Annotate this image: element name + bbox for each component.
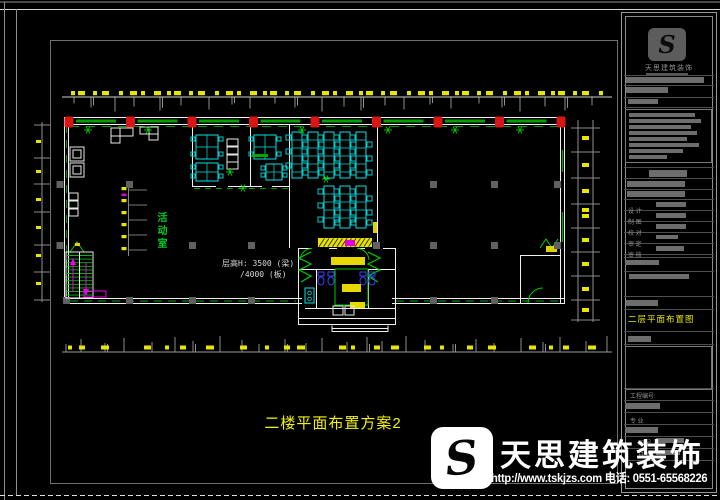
redacted-text-bar (627, 191, 685, 197)
cabinet (73, 166, 81, 174)
dim-label (582, 136, 589, 140)
cabinet (227, 155, 238, 162)
toilet-fixture (318, 272, 324, 276)
redacted-text-bar (625, 260, 659, 265)
field-check: 校 对 (628, 222, 712, 232)
field-separator (624, 400, 714, 401)
column-red (311, 117, 320, 128)
dim-label (467, 346, 473, 350)
dim-label (36, 282, 41, 285)
chair (367, 196, 372, 201)
chair (318, 217, 323, 222)
column-red (495, 117, 504, 128)
redacted-text-bar (627, 181, 685, 187)
column-gray (57, 242, 64, 249)
dim-label (549, 346, 553, 350)
sink (308, 297, 312, 301)
field-separator (624, 85, 714, 86)
dim-label (442, 91, 449, 95)
chair (283, 173, 287, 177)
toilet-fixture (328, 277, 334, 285)
desk (356, 186, 366, 228)
window-sill (138, 120, 178, 123)
desk (324, 132, 334, 178)
elevator-cab (342, 284, 361, 292)
field-separator (624, 97, 714, 98)
dim-label (174, 91, 181, 95)
chair (367, 210, 372, 215)
dim-label (374, 346, 380, 350)
chair (277, 152, 281, 156)
sink (308, 291, 312, 295)
dim-label (240, 346, 247, 350)
desk (308, 132, 318, 178)
chair (350, 163, 355, 168)
column-gray (189, 297, 196, 304)
chair (302, 135, 307, 140)
floor-height-line2: /4000 (板) (222, 269, 294, 280)
desk (292, 132, 302, 178)
chair (367, 170, 372, 175)
dim-label (122, 223, 127, 226)
column-gray (554, 242, 561, 249)
chair (318, 135, 323, 140)
column-red (188, 117, 197, 128)
watermark-logo-icon: S (431, 427, 493, 489)
column-red (372, 117, 381, 128)
dim-label (119, 91, 123, 95)
field-design: 设 计 (628, 200, 712, 210)
dim-label (122, 199, 127, 202)
dim-label (582, 214, 589, 218)
dim-label (582, 208, 589, 212)
column-gray (491, 297, 498, 304)
field-separator (624, 331, 714, 332)
chair (351, 156, 356, 161)
dim-label (351, 346, 355, 350)
redacted-text-bar (629, 274, 689, 279)
chair (367, 156, 372, 161)
chair (219, 152, 223, 156)
dim-label-magenta (122, 194, 127, 197)
dim-label (36, 140, 41, 143)
dim-label (418, 91, 425, 95)
chair (319, 170, 324, 175)
column-red (434, 117, 443, 128)
dim-label (263, 91, 267, 95)
chair (334, 135, 339, 140)
dim-label (102, 91, 109, 95)
dim-label (198, 91, 205, 95)
dim-label (206, 346, 214, 350)
dim-label (339, 346, 346, 350)
chair (318, 189, 323, 194)
field-separator (624, 412, 714, 413)
title-block: S 天思建筑装饰 设 计 制 图 校 对 审 定 审 核 二层平面布置图 工程编… (621, 12, 717, 493)
chair (219, 174, 223, 178)
watermark-logo-letter: S (443, 429, 482, 486)
desk (356, 132, 366, 178)
chair (286, 149, 291, 154)
dim-label (154, 91, 161, 95)
cabinet (70, 147, 84, 161)
column-gray (248, 297, 255, 304)
dim-label (551, 91, 555, 95)
dim-label (525, 91, 529, 95)
dim-label (503, 91, 507, 95)
central-core (299, 238, 380, 315)
company-name: 天思建筑装饰 (622, 63, 716, 73)
dim-label (514, 91, 521, 95)
dim-label (359, 91, 363, 95)
dim-label (582, 189, 589, 193)
desk (340, 132, 350, 178)
logo-letter: S (658, 30, 675, 59)
chair (350, 189, 355, 194)
column-gray (57, 181, 64, 188)
field-separator (624, 271, 714, 272)
dim-label (226, 91, 233, 95)
cabinet (227, 147, 238, 154)
dim-label (79, 346, 85, 350)
dim-label (36, 226, 41, 229)
redacted-text-bar (628, 336, 651, 342)
chair (219, 165, 223, 169)
green-counter (252, 154, 268, 157)
field-separator (624, 344, 714, 345)
dim-label (391, 346, 399, 350)
chair (302, 163, 307, 168)
dim-label (582, 163, 589, 167)
window-sill (261, 120, 301, 123)
dim-label (78, 91, 85, 95)
chair (335, 170, 340, 175)
toilet-fixture (328, 272, 334, 276)
cabinet (70, 163, 84, 177)
dim-label (215, 91, 219, 95)
chair (351, 210, 356, 215)
dim-label (486, 91, 493, 95)
dim-label (122, 211, 127, 214)
chair (351, 196, 356, 201)
cabinet (227, 139, 238, 146)
dim-label (122, 235, 127, 238)
dim-label (558, 91, 565, 95)
column-gray (189, 242, 196, 249)
window-sill (199, 120, 239, 123)
dim-label (36, 170, 41, 173)
dim-label (297, 346, 305, 350)
desk (324, 186, 334, 228)
dim-label (294, 91, 301, 95)
dim-label (333, 91, 337, 95)
dim-label (180, 346, 186, 350)
dim-label (582, 308, 589, 312)
wall-mark (75, 243, 80, 246)
chair (219, 137, 223, 141)
field-separator (624, 167, 714, 168)
chair (367, 142, 372, 147)
column-red (65, 117, 74, 128)
field-separator (624, 296, 714, 297)
toilet-fixture (318, 277, 324, 285)
floor-height-note: 层高H: 3500 (梁) /4000 (板) (222, 258, 294, 280)
redacted-text-bar (626, 300, 658, 306)
notes-box (625, 109, 712, 163)
redacted-text-bar (649, 170, 687, 177)
dim-label (529, 346, 536, 350)
dim-label (582, 91, 589, 95)
chair (318, 163, 323, 168)
chair (303, 142, 308, 147)
window-sill (445, 120, 485, 123)
wall-mark (373, 222, 377, 233)
dim-label (144, 346, 151, 350)
chair (303, 156, 308, 161)
dim-label (462, 91, 469, 95)
dim-label (477, 91, 481, 95)
room-label: 活动室 (152, 212, 168, 268)
dim-label (141, 91, 145, 95)
field-separator (624, 75, 714, 76)
dim-label (71, 91, 75, 95)
field-separator (624, 178, 714, 179)
field-separator (624, 309, 714, 310)
cabinet (111, 128, 133, 136)
dim-label (407, 91, 411, 95)
dim-label (440, 346, 444, 350)
cad-sheet: 活动室 层高H: 3500 (梁) /4000 (板) 二楼平面布置方案2 S … (0, 0, 720, 500)
dim-label (237, 91, 241, 95)
company-logo-icon: S (648, 28, 686, 61)
dim-label (284, 346, 290, 350)
dim-label (36, 198, 41, 201)
column-gray (554, 181, 561, 188)
window-sill (322, 120, 362, 123)
dim-label (122, 187, 127, 190)
window-sill (507, 120, 547, 123)
field-specialty: 专 业 (630, 416, 644, 425)
chair (286, 135, 291, 140)
field-review: 审 核 (628, 244, 712, 254)
chair (319, 156, 324, 161)
field-review-label: 审 核 (628, 253, 642, 259)
core-box (333, 306, 343, 315)
chair (334, 189, 339, 194)
dim-label (455, 91, 459, 95)
chair (350, 135, 355, 140)
dim-label (250, 91, 257, 95)
dim-label (588, 346, 596, 350)
chair (351, 170, 356, 175)
dim-label (390, 91, 397, 95)
redacted-text-bar (626, 77, 704, 83)
column-gray (126, 297, 133, 304)
chair (318, 203, 323, 208)
cabinet (69, 193, 78, 200)
desk (340, 186, 350, 228)
dim-label (122, 247, 127, 250)
dim-label (563, 346, 569, 350)
dim-label (68, 346, 72, 350)
toilet-fixture (360, 272, 366, 276)
dim-label (322, 91, 329, 95)
redacted-text-bar (628, 99, 658, 104)
cabinet (69, 201, 78, 208)
window-sill (384, 120, 424, 123)
dim-label (488, 346, 496, 350)
column-red (557, 117, 566, 128)
chair (334, 203, 339, 208)
column-gray (491, 181, 498, 188)
dim-label (582, 238, 589, 242)
staircase (66, 252, 106, 298)
cabinet (69, 209, 78, 216)
redacted-text-bar (625, 403, 660, 409)
chair (261, 173, 265, 177)
redacted-text-bar (626, 87, 668, 93)
dim-label (165, 346, 169, 350)
cabinet (73, 150, 81, 158)
chair (318, 149, 323, 154)
field-approve: 审 定 (628, 233, 712, 243)
dim-label (311, 91, 315, 95)
field-project-no: 工程编号: (630, 391, 656, 400)
floor-height-line1: 层高H: 3500 (梁) (222, 258, 294, 269)
dim-label (189, 91, 193, 95)
dim-label (93, 91, 97, 95)
dim-label (381, 91, 385, 95)
dim-label (582, 262, 589, 266)
chair (350, 149, 355, 154)
hatch-magenta-mark (345, 240, 355, 246)
chair (335, 210, 340, 215)
field-separator (624, 107, 714, 108)
elevator-cab (350, 302, 365, 308)
dim-label (270, 91, 277, 95)
chair (350, 203, 355, 208)
column-gray (126, 181, 133, 188)
dim-label (265, 346, 269, 350)
chair (277, 137, 281, 141)
column-gray (491, 242, 498, 249)
elevator-cab (331, 257, 365, 265)
column-gray (430, 297, 437, 304)
chair (335, 156, 340, 161)
dim-label (346, 91, 353, 95)
window-sill (76, 120, 116, 123)
dim-label (101, 346, 109, 350)
dim-label (130, 91, 137, 95)
plants (84, 127, 524, 192)
watermark-contact: http://www.tskjzs.com 电话: 0551-65568226 (491, 469, 707, 486)
column-gray (248, 242, 255, 249)
dim-label (429, 91, 433, 95)
chair (303, 170, 308, 175)
drawing-name: 二层平面布置图 (628, 313, 712, 325)
dim-label (573, 91, 577, 95)
dim-label (366, 91, 373, 95)
dim-label (599, 91, 603, 95)
chair (334, 163, 339, 168)
chair (319, 142, 324, 147)
column-gray (430, 181, 437, 188)
dim-label (424, 346, 431, 350)
chair (367, 220, 372, 225)
column-gray (373, 242, 380, 249)
escalator-zigzag (299, 252, 311, 282)
chair (335, 142, 340, 147)
column-red (126, 117, 135, 128)
cabinet (227, 162, 238, 169)
column-red (249, 117, 258, 128)
dim-label (285, 91, 289, 95)
dim-label (167, 91, 171, 95)
chair (334, 149, 339, 154)
stamp-box (625, 346, 712, 390)
drawing-main-title: 二楼平面布置方案2 (248, 412, 418, 433)
toilet-fixture (360, 277, 366, 285)
chair (351, 142, 356, 147)
field-draft: 制 图 (628, 211, 712, 221)
field-separator (624, 189, 714, 190)
dim-label (36, 254, 41, 257)
dim-label (582, 287, 589, 291)
chair (335, 196, 340, 201)
column-gray (430, 242, 437, 249)
chair (302, 149, 307, 154)
chair (261, 166, 265, 170)
dim-label (538, 91, 545, 95)
